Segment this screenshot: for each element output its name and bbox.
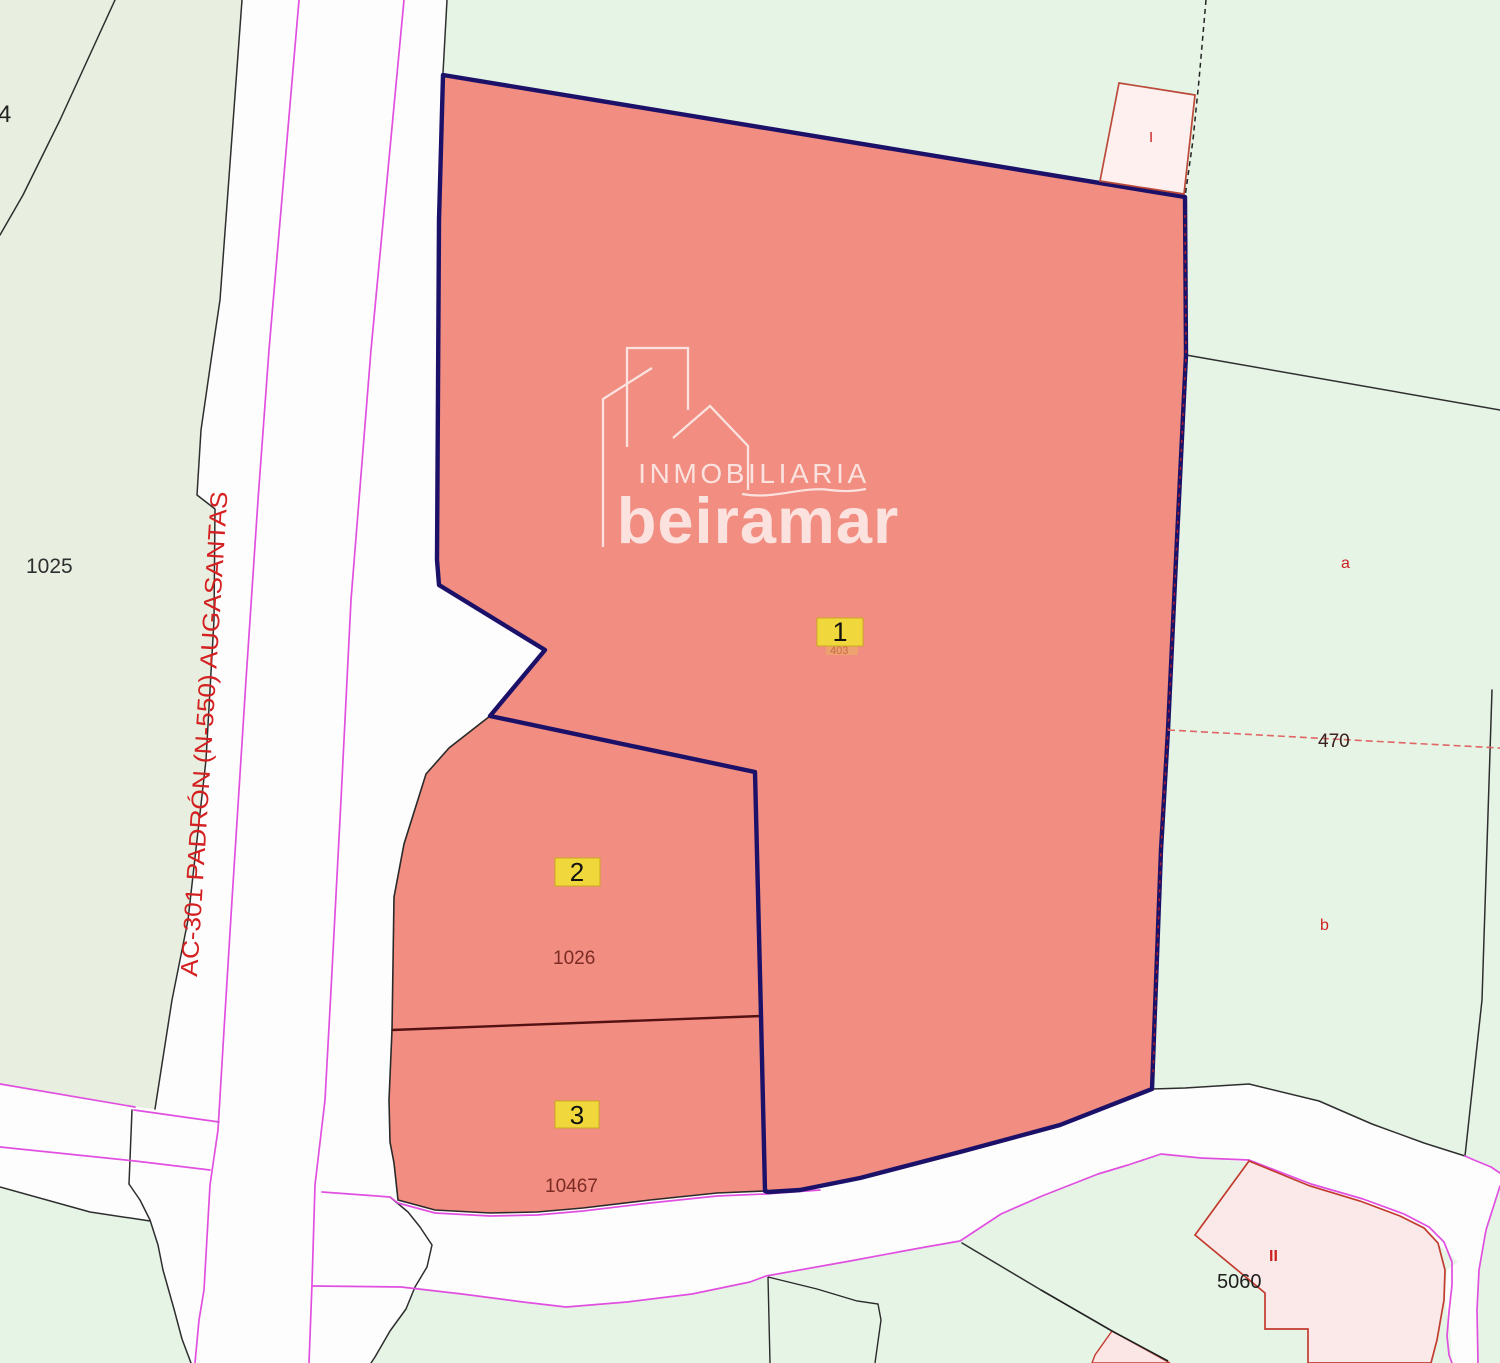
svg-text:beiramar: beiramar bbox=[617, 484, 900, 557]
svg-text:4: 4 bbox=[0, 101, 11, 128]
svg-text:1: 1 bbox=[832, 617, 847, 647]
svg-text:II: II bbox=[1269, 1248, 1278, 1265]
svg-text:5060: 5060 bbox=[1217, 1271, 1262, 1293]
svg-text:10467: 10467 bbox=[545, 1176, 598, 1197]
svg-text:I: I bbox=[1149, 129, 1153, 146]
svg-text:3: 3 bbox=[570, 1100, 584, 1130]
svg-text:1026: 1026 bbox=[553, 948, 595, 969]
svg-text:b: b bbox=[1320, 917, 1329, 934]
svg-text:a: a bbox=[1341, 555, 1350, 572]
svg-text:2: 2 bbox=[570, 857, 584, 887]
svg-text:470: 470 bbox=[1318, 731, 1350, 752]
svg-text:1025: 1025 bbox=[26, 555, 73, 578]
